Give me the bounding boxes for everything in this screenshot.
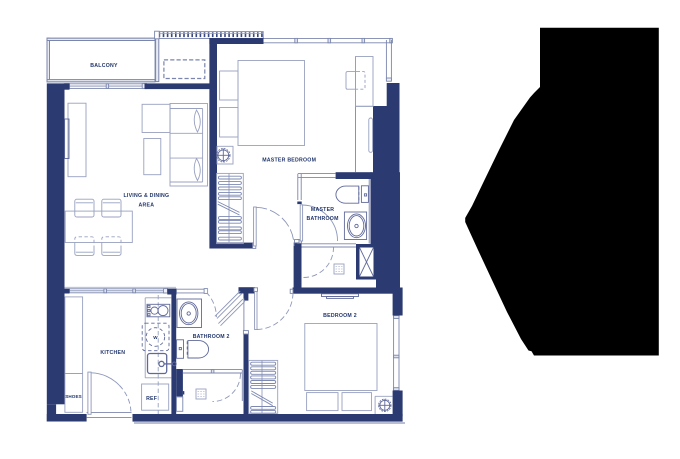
svg-text:BATHROOM 2: BATHROOM 2 <box>193 334 230 340</box>
svg-text:LIVING & DINING: LIVING & DINING <box>123 193 169 199</box>
svg-text:W: W <box>153 335 158 340</box>
svg-text:AREA: AREA <box>139 202 155 208</box>
svg-text:MASTER: MASTER <box>311 207 334 213</box>
svg-text:REF: REF <box>146 396 157 402</box>
svg-text:BATHROOM: BATHROOM <box>307 216 339 222</box>
svg-text:KITCHEN: KITCHEN <box>100 350 125 356</box>
svg-text:BEDROOM 2: BEDROOM 2 <box>323 313 357 319</box>
svg-text:MASTER BEDROOM: MASTER BEDROOM <box>262 158 316 164</box>
svg-text:BALCONY: BALCONY <box>90 63 118 69</box>
svg-text:SHOES: SHOES <box>65 394 82 399</box>
